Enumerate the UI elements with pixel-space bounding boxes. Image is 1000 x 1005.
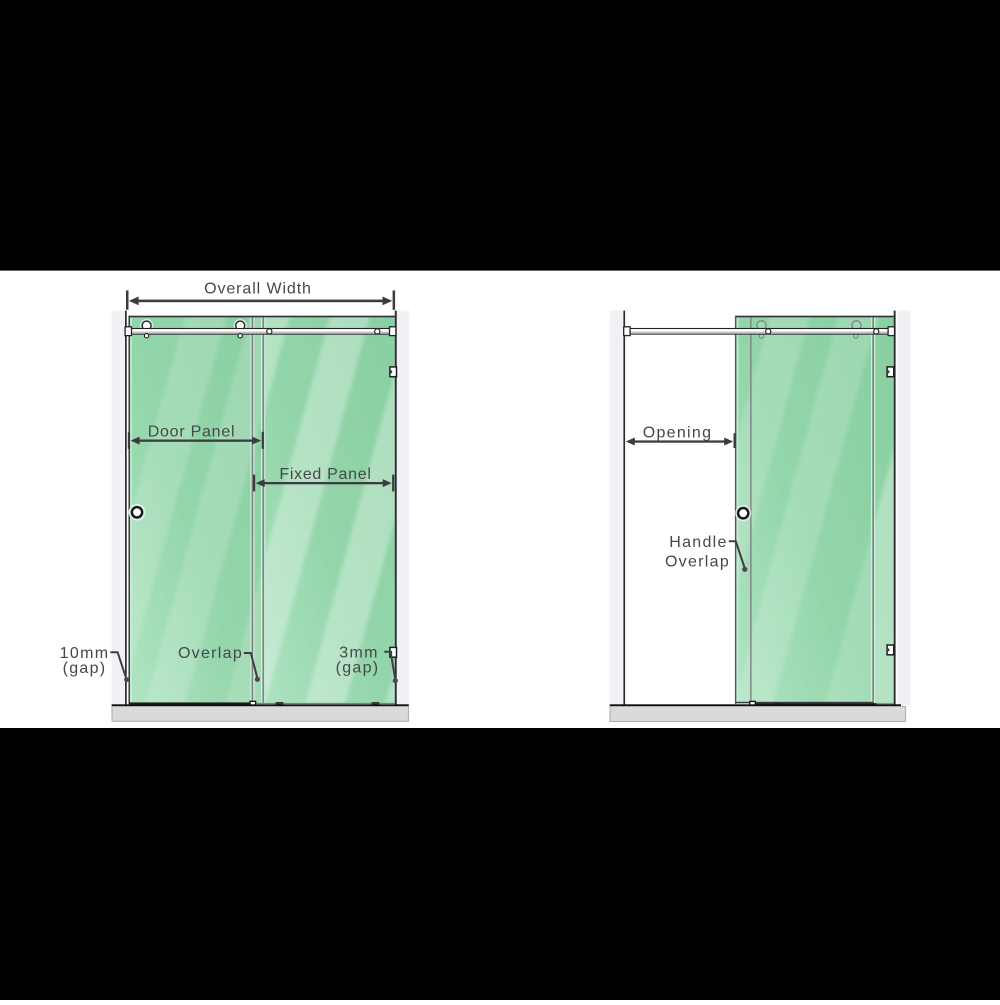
svg-text:(gap): (gap) xyxy=(63,660,107,677)
svg-text:Fixed Panel: Fixed Panel xyxy=(279,466,371,483)
svg-text:(gap): (gap) xyxy=(336,659,380,676)
svg-text:Overlap: Overlap xyxy=(665,553,730,570)
svg-text:Door Panel: Door Panel xyxy=(148,423,236,440)
svg-text:Overlap: Overlap xyxy=(178,645,243,662)
svg-text:Overall Width: Overall Width xyxy=(204,281,312,298)
svg-text:Opening: Opening xyxy=(643,424,713,441)
svg-text:Handle: Handle xyxy=(669,534,728,551)
